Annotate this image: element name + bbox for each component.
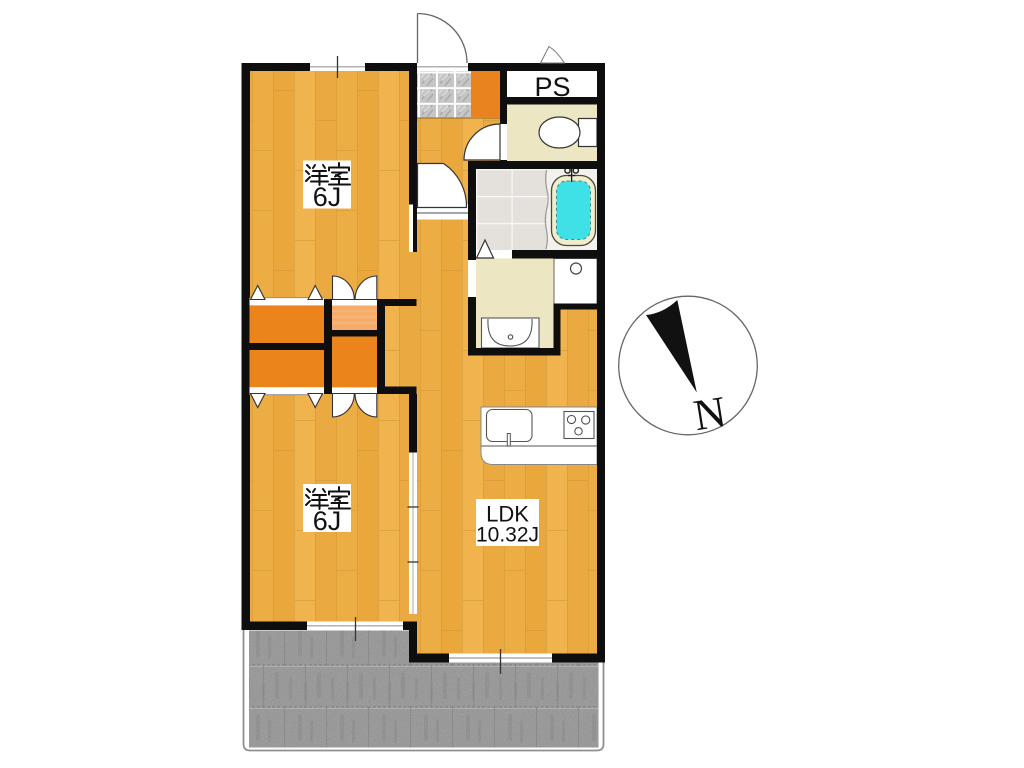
svg-text:10.32J: 10.32J [476,524,539,547]
svg-text:6J: 6J [313,182,342,212]
svg-text:6J: 6J [313,506,342,536]
svg-text:PS: PS [534,72,570,102]
